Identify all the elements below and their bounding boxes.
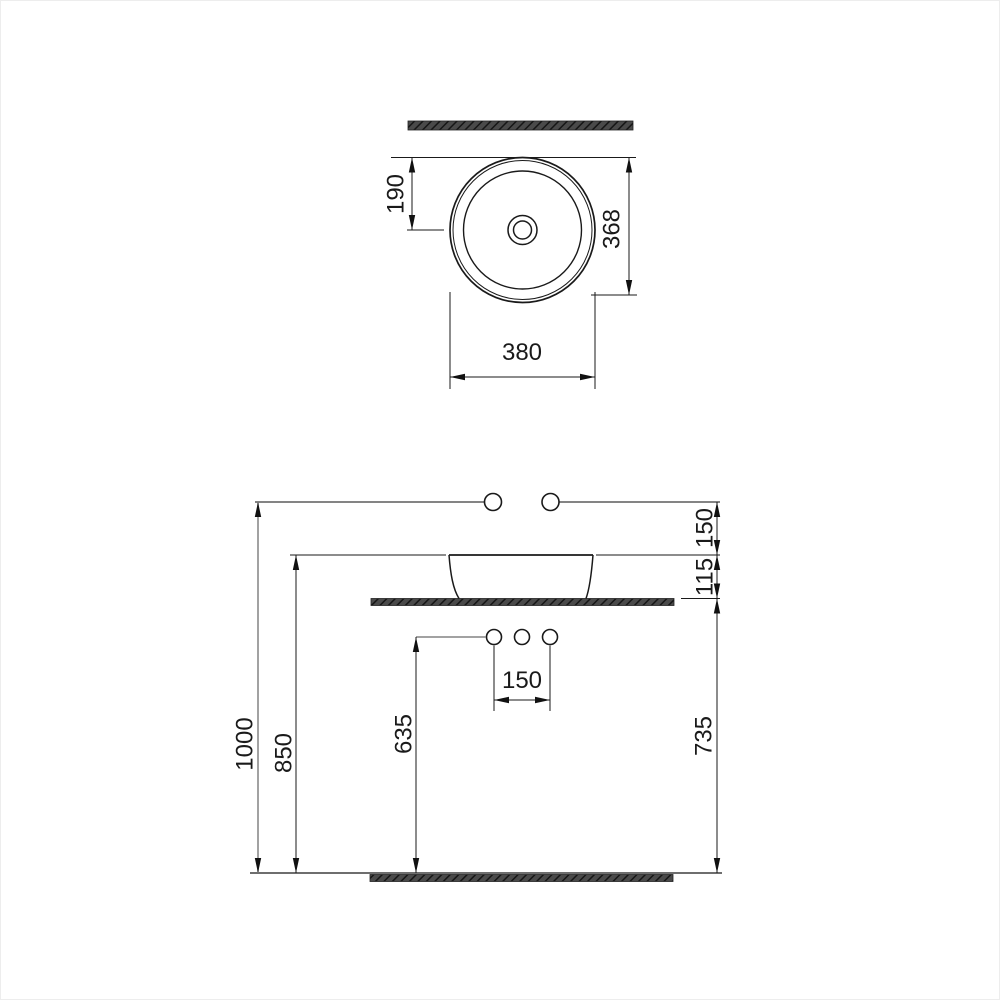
dim-supply-height: 635 bbox=[391, 637, 420, 873]
arrowhead-down bbox=[626, 280, 632, 295]
dim-label-1000: 1000 bbox=[232, 717, 259, 770]
dim-label-190: 190 bbox=[383, 174, 410, 214]
basin-right-side bbox=[586, 555, 593, 599]
dim-bowl-depth: 368 bbox=[599, 158, 633, 296]
faucet-hole-right bbox=[542, 494, 559, 511]
floor-bar bbox=[370, 875, 673, 882]
drawing-sheet: 190 368 380 bbox=[0, 0, 1000, 1000]
dim-rim-height: 850 bbox=[271, 555, 300, 873]
drain-inner-circle bbox=[514, 221, 532, 239]
dim-label-635: 635 bbox=[391, 714, 418, 754]
dim-faucet-height: 1000 bbox=[232, 502, 262, 873]
supply-hole-left bbox=[487, 630, 502, 645]
arrowhead-right bbox=[580, 374, 595, 380]
dim-label-150-spacing: 150 bbox=[502, 667, 542, 694]
basin-bowl-circle bbox=[464, 171, 582, 289]
arrowhead-up bbox=[626, 158, 632, 173]
faucet-hole-left bbox=[485, 494, 502, 511]
dim-label-735: 735 bbox=[691, 716, 718, 756]
arrowhead-up bbox=[293, 555, 299, 570]
arrowhead-down bbox=[409, 215, 415, 230]
arrowhead-up bbox=[409, 158, 415, 173]
arrowhead-down bbox=[714, 858, 720, 873]
dim-supply-spacing: 150 bbox=[494, 646, 550, 712]
dim-center-offset: 190 bbox=[383, 158, 416, 231]
arrowhead-up bbox=[714, 599, 720, 614]
supply-hole-center bbox=[515, 630, 530, 645]
arrowhead-down bbox=[255, 858, 261, 873]
basin-outer-circle bbox=[450, 158, 595, 303]
arrowhead-right bbox=[535, 697, 550, 703]
technical-drawing: 190 368 380 bbox=[0, 0, 1000, 1000]
arrowhead-down bbox=[413, 858, 419, 873]
dim-label-368: 368 bbox=[599, 209, 626, 249]
dim-right-column: 150 115 735 bbox=[691, 502, 721, 873]
wall-section-bar bbox=[408, 121, 633, 130]
arrowhead-left bbox=[494, 697, 509, 703]
arrowhead-up bbox=[413, 637, 419, 652]
dim-label-150-faucet: 150 bbox=[692, 508, 719, 548]
supply-hole-right bbox=[543, 630, 558, 645]
arrowhead-up bbox=[255, 502, 261, 517]
dim-label-115: 115 bbox=[692, 558, 719, 596]
dim-label-380: 380 bbox=[502, 339, 542, 366]
dim-label-850: 850 bbox=[271, 733, 298, 773]
basin-left-side bbox=[449, 555, 459, 599]
dim-outer-diameter: 380 bbox=[450, 339, 595, 380]
arrowhead-down bbox=[293, 858, 299, 873]
basin-rim-circle bbox=[453, 161, 592, 300]
plan-view: 190 368 380 bbox=[383, 121, 638, 389]
arrowhead-left bbox=[450, 374, 465, 380]
drain-outer-circle bbox=[508, 216, 537, 245]
elevation-view: 1000 850 635 150 115 735 bbox=[232, 494, 723, 882]
countertop-bar bbox=[371, 599, 674, 606]
